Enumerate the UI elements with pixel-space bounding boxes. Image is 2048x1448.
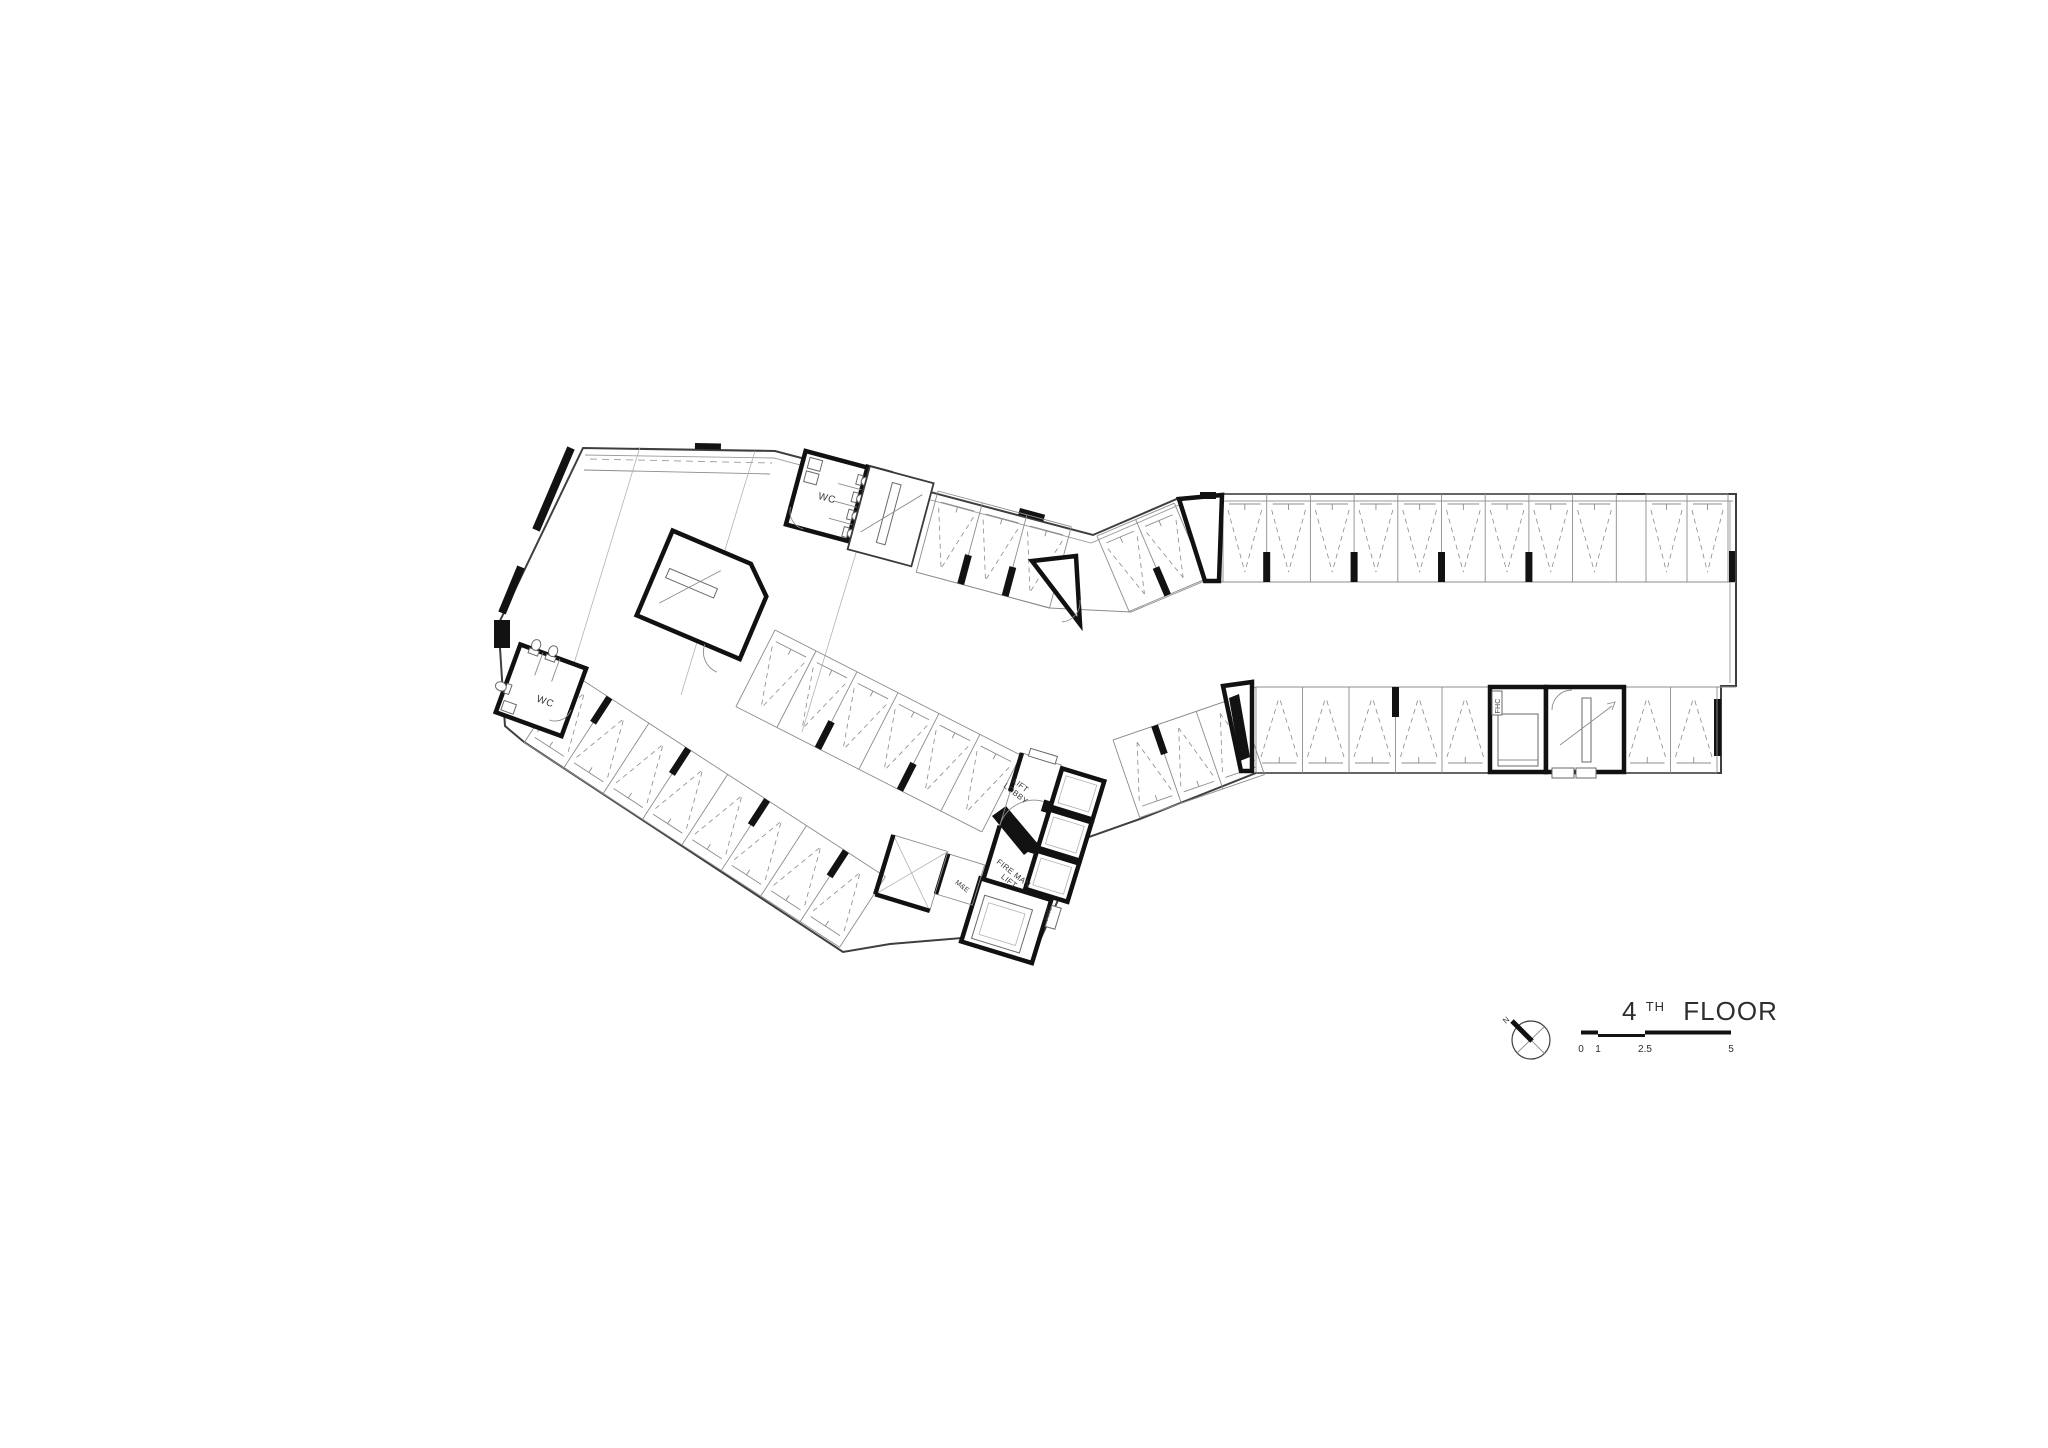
stall-hatch (1420, 510, 1437, 572)
column (748, 798, 770, 827)
stall-hatch (1694, 697, 1712, 757)
column (1153, 566, 1171, 596)
scale-segment (1598, 1034, 1645, 1037)
stall-hatch (786, 667, 829, 729)
wall-accent (536, 448, 571, 530)
stall-entry-tick (829, 670, 832, 675)
stall-hatch (1332, 510, 1349, 572)
column (1438, 552, 1445, 582)
stall-entry-tick (952, 733, 955, 738)
stall-entry-tick (1197, 781, 1199, 787)
stall-divider (1196, 711, 1223, 789)
stall-divider (777, 651, 816, 728)
stall-hatch (1403, 510, 1420, 572)
column (1351, 552, 1358, 582)
stall-hatch (1376, 510, 1393, 572)
stall-divider (859, 693, 898, 770)
column (1729, 551, 1735, 582)
stall-divider (1097, 536, 1129, 611)
stall-hatch (1372, 697, 1390, 757)
stall-hatch (1163, 728, 1197, 786)
stall-hatch (1507, 510, 1524, 572)
stall-hatch (1490, 510, 1507, 572)
right-wing-bottom-row-left (1256, 687, 1489, 773)
column (815, 720, 835, 750)
stall-entry-tick (1120, 537, 1122, 543)
north-needle (1512, 1021, 1532, 1041)
stall-hatch (1121, 742, 1155, 800)
stall-hatch (1629, 697, 1647, 757)
column (1392, 687, 1399, 717)
stall-hatch (909, 730, 952, 792)
stall-hatch (884, 717, 927, 779)
row-edge (1097, 503, 1174, 536)
column (590, 696, 612, 725)
stall-hatch (1401, 697, 1419, 757)
main-core (869, 717, 1107, 967)
aisle-edge-upper (916, 572, 1736, 612)
stall-hatch (1179, 722, 1213, 780)
scale-tick: 1 (1595, 1044, 1601, 1055)
stall-hatch (1578, 510, 1595, 572)
stall-entry-tick (628, 793, 631, 798)
stall-hatch (1447, 510, 1464, 572)
stall-hatch (1419, 697, 1437, 757)
threshold (1552, 768, 1574, 778)
stall-hatch (761, 655, 804, 717)
stall-hatch (924, 508, 956, 569)
stall-hatch (1463, 510, 1480, 572)
stall-hatch (1123, 536, 1160, 594)
stall-hatch (843, 696, 886, 758)
north-label: N (1501, 1015, 1511, 1026)
column (957, 554, 972, 585)
stall-hatch (1359, 510, 1376, 572)
stall-entry-tick (993, 754, 996, 759)
scale-segment (1645, 1031, 1731, 1035)
right-wing-top-row-b (1646, 494, 1728, 582)
wall-accent (502, 567, 521, 613)
wall-accent (695, 443, 721, 449)
stall-hatch (827, 688, 870, 750)
stall-hatch (1289, 510, 1306, 572)
stall-entry-tick (788, 649, 791, 654)
floor-line (584, 470, 770, 474)
right-wing-bottom-row-right (1624, 687, 1717, 773)
stall-hatch (1676, 697, 1694, 757)
stall-hatch (1279, 697, 1297, 757)
stall-entry-tick (668, 819, 671, 824)
stall-hatch (868, 709, 911, 771)
canopy-dashed-line (590, 459, 772, 463)
stall-entry-tick (746, 870, 749, 875)
stall-hatch (1261, 697, 1279, 757)
inner-wall-line (585, 455, 1733, 543)
stall-hatch (1308, 697, 1326, 757)
stall-divider (761, 826, 807, 896)
stall-entry-tick (870, 691, 873, 696)
stall-hatch (1315, 510, 1332, 572)
stall-hatch (925, 738, 968, 800)
stall-divider (682, 774, 728, 844)
upper-wc-core: WC (784, 449, 934, 566)
stall-entry-tick (786, 895, 789, 900)
stall-entry-tick (589, 767, 592, 772)
grid-line (802, 533, 862, 732)
north-arrow: N (1501, 1015, 1550, 1059)
scale-tick: 0 (1578, 1044, 1584, 1055)
title-block: N 4 TH FLOOR 0 1 2.5 5 (1501, 987, 1778, 1059)
stall-hatch (1594, 510, 1611, 572)
stall-hatch (950, 751, 993, 813)
stall-hatch (1551, 510, 1568, 572)
column (1263, 552, 1270, 582)
wall-accent (1200, 492, 1216, 499)
stall-hatch (1465, 697, 1483, 757)
lobby-wall (984, 826, 1000, 878)
stall-hatch (1651, 510, 1667, 572)
middle-stair-core (628, 531, 775, 679)
lift-car (1498, 714, 1538, 766)
stall-entry-tick (911, 712, 914, 717)
stall-entry-tick (707, 844, 710, 849)
me-room-label: M&E (954, 879, 971, 894)
row-edge (1113, 697, 1238, 740)
stall-hatch (1326, 697, 1344, 757)
row-edge (938, 491, 1071, 527)
column (669, 747, 691, 776)
shaft-wall (875, 894, 930, 911)
stall-hatch (1228, 510, 1245, 572)
scale-tick: 5 (1728, 1044, 1734, 1055)
column (1525, 552, 1532, 582)
column (827, 849, 849, 878)
threshold (1576, 768, 1596, 778)
stall-hatch (968, 520, 1000, 581)
column (897, 762, 917, 792)
stall-hatch (1137, 737, 1171, 795)
right-core (1490, 687, 1624, 778)
column (1714, 699, 1721, 756)
stall-hatch (1708, 510, 1724, 572)
stall-hatch (1534, 510, 1551, 572)
threshold (1028, 748, 1057, 764)
page-title: 4 TH FLOOR (1622, 987, 1778, 1026)
stall-hatch (1692, 510, 1708, 572)
floor-plan-canvas: WC WC (0, 0, 2048, 1448)
stall-hatch (802, 676, 845, 738)
stall-hatch (745, 647, 788, 709)
stall-hatch (1354, 697, 1372, 757)
row-edge (1140, 775, 1265, 818)
left-wing-middle-band (736, 630, 1021, 832)
fhc-stair-label: FHC (1495, 699, 1502, 714)
me-wall (936, 854, 948, 894)
scale-bar: 0 1 2.5 5 (1578, 1031, 1734, 1056)
stall-hatch (1647, 697, 1665, 757)
right-wing-top-row-a (1223, 494, 1616, 582)
stall-divider (1113, 740, 1140, 818)
grid-line (566, 447, 640, 690)
stall-entry-tick (825, 921, 828, 926)
wall-accent (494, 620, 510, 648)
stair-rail (1582, 698, 1591, 762)
stall-entry-tick (1155, 795, 1157, 801)
column (1151, 725, 1167, 756)
column (1002, 566, 1017, 597)
stall-hatch (1447, 697, 1465, 757)
stall-hatch (1245, 510, 1262, 572)
drawing-sheet: WC WC (0, 0, 2048, 1448)
stall-divider (603, 723, 649, 793)
stall-hatch (1667, 510, 1683, 572)
scale-tick: 2.5 (1638, 1044, 1652, 1055)
stall-hatch (1147, 526, 1184, 584)
stall-divider (941, 734, 980, 811)
stall-entry-tick (549, 742, 552, 747)
left-wing-bottom-band (524, 672, 885, 947)
junction-shaft-triangle (1032, 556, 1080, 624)
stall-hatch (1108, 543, 1145, 601)
junction-shaft-upper (1179, 495, 1222, 581)
scale-segment (1581, 1031, 1598, 1035)
stall-entry-tick (1159, 521, 1161, 527)
stall-hatch (1272, 510, 1289, 572)
